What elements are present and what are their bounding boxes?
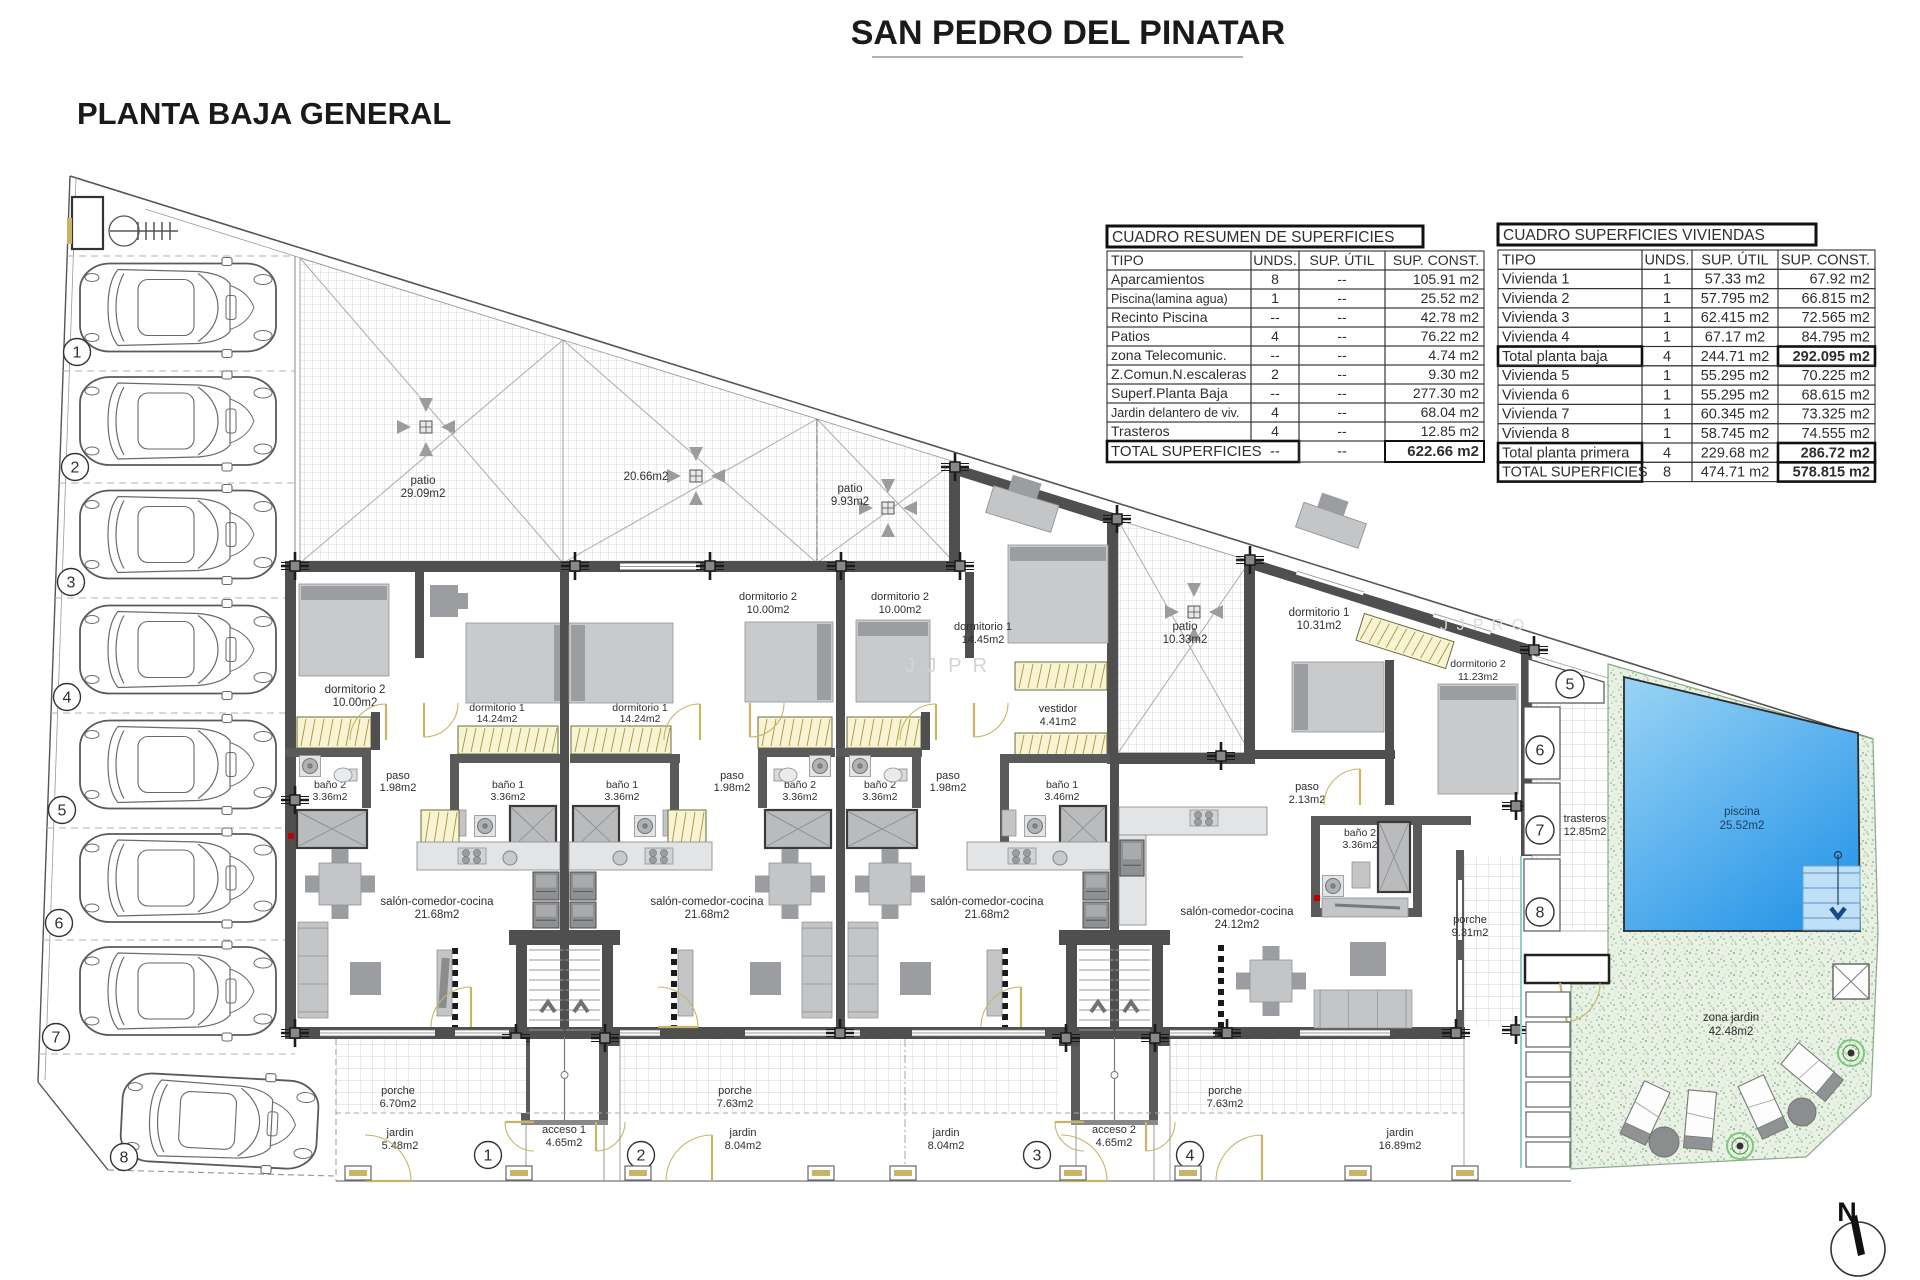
svg-text:1: 1 — [1663, 272, 1671, 288]
svg-text:Trasteros: Trasteros — [1111, 423, 1170, 439]
svg-text:9.93m2: 9.93m2 — [831, 496, 869, 508]
svg-text:1: 1 — [1663, 368, 1671, 384]
svg-text:acceso 1: acceso 1 — [542, 1124, 586, 1136]
svg-text:Vivienda 3: Vivienda 3 — [1502, 310, 1569, 326]
svg-text:1: 1 — [1663, 387, 1671, 403]
svg-text:porche: porche — [381, 1085, 415, 1097]
svg-text:9.30 m2: 9.30 m2 — [1428, 366, 1479, 382]
svg-text:--: -- — [1337, 347, 1347, 363]
svg-text:1: 1 — [1663, 407, 1671, 423]
svg-text:SUP. ÚTIL: SUP. ÚTIL — [1309, 252, 1374, 268]
svg-text:zona Telecomunic.: zona Telecomunic. — [1111, 347, 1227, 363]
svg-text:4.41m2: 4.41m2 — [1040, 716, 1077, 728]
svg-text:1: 1 — [1663, 291, 1671, 307]
svg-text:2: 2 — [1271, 366, 1279, 382]
svg-text:76.22 m2: 76.22 m2 — [1421, 328, 1480, 344]
svg-text:25.52 m2: 25.52 m2 — [1421, 290, 1480, 306]
svg-text:acceso 2: acceso 2 — [1092, 1124, 1136, 1136]
svg-text:72.565 m2: 72.565 m2 — [1801, 310, 1870, 326]
svg-text:3.36m2: 3.36m2 — [862, 791, 897, 803]
svg-text:salón-comedor-cocina: salón-comedor-cocina — [930, 896, 1044, 908]
svg-text:74.555 m2: 74.555 m2 — [1801, 426, 1870, 442]
svg-text:1: 1 — [1663, 330, 1671, 346]
svg-text:--: -- — [1337, 404, 1347, 420]
svg-text:vestidor: vestidor — [1039, 703, 1078, 715]
svg-text:4.74 m2: 4.74 m2 — [1428, 347, 1479, 363]
svg-text:286.72 m2: 286.72 m2 — [1801, 445, 1870, 461]
svg-text:SAN PEDRO DEL PINATAR: SAN PEDRO DEL PINATAR — [851, 14, 1285, 52]
svg-text:84.795 m2: 84.795 m2 — [1801, 330, 1870, 346]
svg-text:paso: paso — [386, 770, 410, 782]
svg-text:1.98m2: 1.98m2 — [380, 782, 417, 794]
svg-text:jardin: jardin — [386, 1127, 414, 1139]
svg-text:J J P R: J J P R — [905, 655, 990, 677]
svg-text:4: 4 — [1271, 404, 1279, 420]
svg-text:--: -- — [1337, 290, 1347, 306]
svg-text:8: 8 — [1536, 905, 1545, 922]
svg-text:Vivienda 5: Vivienda 5 — [1502, 368, 1569, 384]
svg-text:--: -- — [1270, 347, 1280, 363]
svg-text:1: 1 — [1663, 310, 1671, 326]
svg-text:14.24m2: 14.24m2 — [620, 713, 661, 725]
svg-text:4: 4 — [1186, 1148, 1195, 1165]
svg-text:6.70m2: 6.70m2 — [380, 1098, 417, 1110]
svg-text:73.325 m2: 73.325 m2 — [1801, 407, 1870, 423]
svg-text:Vivienda 7: Vivienda 7 — [1502, 407, 1569, 423]
svg-text:4: 4 — [1271, 423, 1279, 439]
svg-text:baño 1: baño 1 — [1046, 779, 1078, 791]
svg-text:TIPO: TIPO — [1502, 252, 1536, 268]
svg-text:--: -- — [1270, 444, 1280, 460]
svg-text:jardin: jardin — [729, 1127, 757, 1139]
svg-text:1: 1 — [1271, 290, 1279, 306]
svg-text:3.36m2: 3.36m2 — [604, 791, 639, 803]
svg-text:Vivienda 4: Vivienda 4 — [1502, 330, 1569, 346]
svg-text:porche: porche — [1208, 1085, 1242, 1097]
svg-text:Total planta primera: Total planta primera — [1502, 445, 1630, 461]
svg-text:dormitorio 1: dormitorio 1 — [1289, 607, 1350, 619]
svg-text:Vivienda 2: Vivienda 2 — [1502, 291, 1569, 307]
svg-text:CUADRO SUPERFICIES VIVIENDAS: CUADRO SUPERFICIES VIVIENDAS — [1503, 227, 1765, 244]
svg-text:12.85m2: 12.85m2 — [1564, 826, 1607, 838]
svg-text:zona jardin: zona jardin — [1703, 1012, 1759, 1024]
svg-text:70.225 m2: 70.225 m2 — [1801, 368, 1870, 384]
svg-text:3.36m2: 3.36m2 — [490, 791, 525, 803]
svg-text:baño 1: baño 1 — [492, 779, 524, 791]
svg-text:Vivienda 6: Vivienda 6 — [1502, 387, 1569, 403]
svg-text:14.24m2: 14.24m2 — [477, 713, 518, 725]
svg-text:10.33m2: 10.33m2 — [1163, 634, 1208, 646]
svg-text:TOTAL SUPERFICIES: TOTAL SUPERFICIES — [1111, 443, 1262, 460]
svg-text:68.615 m2: 68.615 m2 — [1801, 387, 1870, 403]
svg-text:dormitorio 2: dormitorio 2 — [871, 591, 929, 603]
svg-text:8.04m2: 8.04m2 — [928, 1140, 965, 1152]
svg-text:porche: porche — [1453, 914, 1487, 926]
svg-text:2.13m2: 2.13m2 — [1289, 794, 1326, 806]
svg-text:66.815 m2: 66.815 m2 — [1801, 291, 1870, 307]
svg-text:67.17 m2: 67.17 m2 — [1705, 330, 1765, 346]
svg-text:SUP. CONST.: SUP. CONST. — [1393, 252, 1479, 268]
svg-text:5: 5 — [1566, 677, 1575, 694]
svg-text:4: 4 — [1663, 349, 1671, 365]
svg-text:baño 2: baño 2 — [1344, 827, 1376, 839]
svg-text:trasteros: trasteros — [1564, 813, 1607, 825]
svg-text:dormitorio 2: dormitorio 2 — [325, 684, 386, 696]
svg-text:Z.Comun.N.escaleras: Z.Comun.N.escaleras — [1111, 366, 1246, 382]
svg-text:58.745 m2: 58.745 m2 — [1701, 426, 1770, 442]
svg-text:1: 1 — [484, 1148, 493, 1165]
svg-text:--: -- — [1337, 385, 1347, 401]
svg-text:Recinto Piscina: Recinto Piscina — [1111, 309, 1208, 325]
svg-text:5: 5 — [58, 803, 67, 820]
svg-text:5.48m2: 5.48m2 — [382, 1140, 419, 1152]
svg-text:68.04 m2: 68.04 m2 — [1421, 404, 1480, 420]
svg-text:7.63m2: 7.63m2 — [1207, 1098, 1244, 1110]
svg-text:10.00m2: 10.00m2 — [747, 604, 790, 616]
svg-text:patio: patio — [411, 475, 436, 487]
svg-text:--: -- — [1337, 309, 1347, 325]
svg-text:1.98m2: 1.98m2 — [930, 782, 967, 794]
svg-text:622.66 m2: 622.66 m2 — [1407, 443, 1479, 460]
svg-text:--: -- — [1270, 309, 1280, 325]
svg-text:2: 2 — [637, 1148, 646, 1165]
svg-text:Total planta baja: Total planta baja — [1502, 349, 1609, 365]
svg-text:3: 3 — [1033, 1148, 1042, 1165]
svg-text:3: 3 — [67, 575, 76, 592]
svg-text:Piscina(lamina agua): Piscina(lamina agua) — [1111, 292, 1228, 306]
svg-text:21.68m2: 21.68m2 — [965, 909, 1010, 921]
svg-text:7: 7 — [52, 1030, 61, 1047]
svg-text:62.415 m2: 62.415 m2 — [1701, 310, 1770, 326]
svg-text:25.52m2: 25.52m2 — [1720, 820, 1765, 832]
svg-text:8: 8 — [120, 1150, 129, 1167]
svg-text:4: 4 — [63, 690, 72, 707]
svg-text:TIPO: TIPO — [1111, 252, 1144, 268]
svg-text:244.71 m2: 244.71 m2 — [1701, 349, 1770, 365]
svg-text:3.36m2: 3.36m2 — [1342, 839, 1377, 851]
svg-text:42.78 m2: 42.78 m2 — [1421, 309, 1480, 325]
svg-text:1: 1 — [73, 345, 82, 362]
svg-text:6: 6 — [1536, 743, 1545, 760]
svg-text:8.04m2: 8.04m2 — [725, 1140, 762, 1152]
svg-text:salón-comedor-cocina: salón-comedor-cocina — [380, 896, 494, 908]
svg-text:dormitorio 2: dormitorio 2 — [739, 591, 797, 603]
svg-text:12.85 m2: 12.85 m2 — [1421, 423, 1480, 439]
svg-text:474.71 m2: 474.71 m2 — [1701, 465, 1770, 481]
svg-text:patio: patio — [1173, 621, 1198, 633]
svg-text:J J P R O: J J P R O — [1440, 617, 1526, 634]
svg-text:229.68 m2: 229.68 m2 — [1701, 445, 1770, 461]
svg-text:jardin: jardin — [932, 1127, 960, 1139]
svg-text:salón-comedor-cocina: salón-comedor-cocina — [650, 896, 764, 908]
svg-text:4.65m2: 4.65m2 — [546, 1137, 583, 1149]
svg-text:292.095 m2: 292.095 m2 — [1793, 349, 1870, 365]
svg-text:1.98m2: 1.98m2 — [714, 782, 751, 794]
svg-text:patio: patio — [838, 483, 863, 495]
svg-text:21.68m2: 21.68m2 — [685, 909, 730, 921]
svg-text:UNDS.: UNDS. — [1253, 252, 1297, 268]
svg-text:Vivienda 8: Vivienda 8 — [1502, 426, 1569, 442]
svg-text:20.66m2: 20.66m2 — [624, 471, 669, 483]
svg-text:57.795 m2: 57.795 m2 — [1701, 291, 1770, 307]
svg-text:Aparcamientos: Aparcamientos — [1111, 271, 1204, 287]
svg-text:4.65m2: 4.65m2 — [1096, 1137, 1133, 1149]
svg-text:67.92 m2: 67.92 m2 — [1810, 272, 1870, 288]
svg-text:--: -- — [1337, 366, 1347, 382]
svg-text:4: 4 — [1271, 328, 1279, 344]
svg-text:9.31m2: 9.31m2 — [1452, 927, 1489, 939]
svg-text:PLANTA BAJA GENERAL: PLANTA BAJA GENERAL — [77, 96, 451, 131]
svg-text:TOTAL SUPERFICIES: TOTAL SUPERFICIES — [1502, 465, 1648, 481]
svg-text:porche: porche — [718, 1085, 752, 1097]
svg-text:jardin: jardin — [1386, 1127, 1414, 1139]
svg-text:277.30 m2: 277.30 m2 — [1413, 385, 1479, 401]
svg-text:60.345 m2: 60.345 m2 — [1701, 407, 1770, 423]
svg-text:55.295 m2: 55.295 m2 — [1701, 387, 1770, 403]
svg-text:578.815 m2: 578.815 m2 — [1793, 465, 1870, 481]
svg-text:--: -- — [1337, 423, 1347, 439]
svg-text:55.295 m2: 55.295 m2 — [1701, 368, 1770, 384]
svg-text:105.91 m2: 105.91 m2 — [1413, 271, 1479, 287]
svg-text:paso: paso — [936, 770, 960, 782]
svg-text:salón-comedor-cocina: salón-comedor-cocina — [1180, 906, 1294, 918]
svg-text:1: 1 — [1663, 426, 1671, 442]
svg-text:piscina: piscina — [1724, 806, 1760, 818]
svg-text:--: -- — [1337, 444, 1347, 460]
svg-text:--: -- — [1337, 271, 1347, 287]
svg-text:3.46m2: 3.46m2 — [1044, 791, 1079, 803]
svg-text:8: 8 — [1271, 271, 1279, 287]
svg-text:16.89m2: 16.89m2 — [1379, 1140, 1422, 1152]
svg-text:Superf.Planta Baja: Superf.Planta Baja — [1111, 385, 1228, 401]
svg-text:7: 7 — [1536, 823, 1545, 840]
svg-text:dormitorio 2: dormitorio 2 — [1450, 658, 1506, 670]
svg-text:3.36m2: 3.36m2 — [782, 791, 817, 803]
svg-text:6: 6 — [55, 916, 64, 933]
svg-text:10.00m2: 10.00m2 — [879, 604, 922, 616]
svg-text:2: 2 — [71, 460, 80, 477]
svg-text:Patios: Patios — [1111, 328, 1150, 344]
svg-text:4: 4 — [1663, 445, 1671, 461]
svg-text:paso: paso — [720, 770, 744, 782]
svg-text:42.48m2: 42.48m2 — [1709, 1026, 1754, 1038]
svg-text:14.45m2: 14.45m2 — [962, 634, 1005, 646]
svg-text:CUADRO RESUMEN DE SUPERFICIES: CUADRO RESUMEN DE SUPERFICIES — [1112, 229, 1394, 246]
svg-text:paso: paso — [1295, 781, 1319, 793]
svg-text:dormitorio 1: dormitorio 1 — [954, 621, 1012, 633]
svg-text:10.31m2: 10.31m2 — [1297, 620, 1342, 632]
svg-text:3.36m2: 3.36m2 — [312, 791, 347, 803]
svg-text:SUP. ÚTIL: SUP. ÚTIL — [1701, 251, 1768, 268]
svg-text:11.23m2: 11.23m2 — [1458, 671, 1498, 683]
svg-text:Jardin delantero de viv.: Jardin delantero de viv. — [1111, 406, 1239, 420]
svg-text:SUP. CONST.: SUP. CONST. — [1781, 252, 1870, 268]
svg-text:--: -- — [1270, 385, 1280, 401]
svg-text:Vivienda 1: Vivienda 1 — [1502, 272, 1569, 288]
svg-text:baño 1: baño 1 — [606, 779, 638, 791]
svg-text:21.68m2: 21.68m2 — [415, 909, 460, 921]
svg-text:57.33 m2: 57.33 m2 — [1705, 272, 1765, 288]
svg-text:24.12m2: 24.12m2 — [1215, 919, 1260, 931]
svg-text:29.09m2: 29.09m2 — [401, 488, 446, 500]
svg-text:8: 8 — [1663, 465, 1671, 481]
svg-text:--: -- — [1337, 328, 1347, 344]
svg-text:UNDS.: UNDS. — [1644, 252, 1689, 268]
svg-text:7.63m2: 7.63m2 — [717, 1098, 754, 1110]
